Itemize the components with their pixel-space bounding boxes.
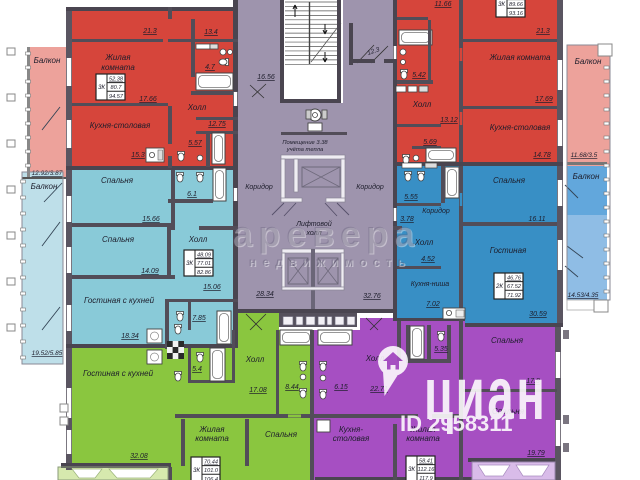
- svg-text:13.4: 13.4: [204, 29, 218, 36]
- svg-text:Холл: Холл: [187, 103, 207, 112]
- svg-text:3К: 3К: [498, 1, 505, 8]
- svg-text:19.52/5.85: 19.52/5.85: [32, 350, 63, 357]
- svg-text:5.69: 5.69: [423, 139, 437, 146]
- svg-text:4.52: 4.52: [421, 256, 435, 263]
- svg-text:11.66: 11.66: [435, 1, 452, 8]
- svg-text:19.79: 19.79: [527, 450, 545, 457]
- svg-text:30.59: 30.59: [529, 311, 547, 318]
- svg-text:Жилая комната: Жилая комната: [489, 53, 551, 62]
- svg-text:Балкон: Балкон: [34, 56, 61, 65]
- svg-text:Балкон: Балкон: [31, 182, 58, 191]
- svg-text:5.35: 5.35: [434, 346, 448, 353]
- svg-text:14.53/4.35: 14.53/4.35: [568, 292, 599, 299]
- svg-text:аревера: аревера: [232, 213, 420, 254]
- svg-text:Кухня-столовая: Кухня-столовая: [90, 121, 151, 130]
- svg-text:Спальня: Спальня: [102, 235, 135, 244]
- svg-text:17.08: 17.08: [249, 387, 267, 394]
- svg-text:71.92: 71.92: [507, 293, 522, 299]
- svg-text:32.08: 32.08: [130, 453, 148, 460]
- svg-text:Балкон: Балкон: [575, 57, 602, 66]
- svg-text:Балкон: Балкон: [573, 172, 600, 181]
- svg-text:Спальня: Спальня: [493, 176, 526, 185]
- svg-text:3К: 3К: [193, 467, 200, 474]
- svg-text:77.01: 77.01: [197, 261, 211, 267]
- svg-text:15.66: 15.66: [142, 216, 160, 223]
- svg-text:89.66: 89.66: [509, 2, 524, 8]
- svg-text:Жилая: Жилая: [104, 53, 131, 62]
- svg-text:17.66: 17.66: [139, 96, 157, 103]
- svg-text:18.34: 18.34: [121, 333, 139, 340]
- svg-text:58.41: 58.41: [419, 459, 433, 465]
- svg-text:ID 2958311: ID 2958311: [400, 411, 513, 436]
- svg-text:14.78: 14.78: [533, 152, 551, 159]
- svg-text:7.85: 7.85: [192, 315, 206, 322]
- svg-text:117.9: 117.9: [419, 476, 433, 480]
- svg-text:14.09: 14.09: [141, 268, 159, 275]
- svg-text:101.0: 101.0: [204, 468, 219, 474]
- svg-text:Спальня: Спальня: [491, 336, 524, 345]
- svg-text:5.57: 5.57: [188, 140, 203, 147]
- svg-text:48.09: 48.09: [197, 253, 211, 259]
- svg-text:82.86: 82.86: [197, 270, 212, 276]
- svg-text:94.57: 94.57: [109, 94, 124, 100]
- svg-text:5.55: 5.55: [404, 194, 418, 201]
- svg-text:28.34: 28.34: [255, 291, 274, 298]
- svg-text:15.3: 15.3: [131, 152, 145, 159]
- svg-text:Кухня-ниша: Кухня-ниша: [411, 281, 450, 288]
- svg-text:Гостиная с кухней: Гостиная с кухней: [83, 369, 154, 378]
- svg-text:5.42: 5.42: [412, 72, 426, 79]
- svg-text:112.16: 112.16: [418, 467, 436, 473]
- svg-text:21.3: 21.3: [142, 28, 157, 35]
- svg-text:Кухня-столовая: Кухня-столовая: [490, 123, 551, 132]
- svg-text:3К: 3К: [98, 84, 105, 91]
- svg-text:Холл: Холл: [188, 235, 208, 244]
- svg-text:12.75: 12.75: [208, 121, 226, 128]
- svg-text:Холл: Холл: [412, 100, 432, 109]
- svg-text:Гостиная: Гостиная: [490, 246, 527, 255]
- svg-text:8.44: 8.44: [285, 384, 299, 391]
- svg-text:Помещение 3.38: Помещение 3.38: [282, 140, 328, 146]
- svg-text:11.68/3.5: 11.68/3.5: [571, 152, 598, 159]
- svg-text:16.11: 16.11: [529, 216, 546, 223]
- svg-text:Спальня: Спальня: [265, 430, 298, 439]
- svg-text:5.4: 5.4: [192, 366, 202, 373]
- svg-text:Коридор: Коридор: [245, 183, 273, 191]
- svg-text:столовая: столовая: [333, 434, 370, 443]
- svg-text:Коридор: Коридор: [356, 183, 384, 191]
- svg-text:3К: 3К: [186, 260, 193, 267]
- svg-text:93.16: 93.16: [509, 11, 524, 17]
- svg-text:12.92/3.87: 12.92/3.87: [32, 170, 63, 177]
- svg-text:2К: 2К: [495, 283, 503, 290]
- svg-text:17.69: 17.69: [535, 96, 553, 103]
- svg-text:7.02: 7.02: [426, 301, 440, 308]
- svg-text:4.7: 4.7: [205, 64, 216, 71]
- svg-text:16.56: 16.56: [257, 74, 275, 81]
- svg-text:13.12: 13.12: [440, 117, 458, 124]
- svg-text:Холл: Холл: [245, 355, 265, 364]
- svg-text:комната: комната: [195, 434, 229, 443]
- svg-text:6.15: 6.15: [334, 384, 348, 391]
- svg-text:6.1: 6.1: [187, 191, 197, 198]
- svg-text:32.76: 32.76: [363, 293, 381, 300]
- svg-text:46.76: 46.76: [507, 276, 522, 282]
- svg-text:80.7: 80.7: [111, 85, 123, 91]
- svg-text:70.44: 70.44: [204, 460, 218, 466]
- svg-text:21.3: 21.3: [535, 28, 550, 35]
- svg-text:комната: комната: [101, 63, 135, 72]
- svg-text:недвижимость: недвижимость: [249, 255, 411, 269]
- svg-text:Спальня: Спальня: [101, 176, 134, 185]
- svg-text:Гостиная с кухней: Гостиная с кухней: [84, 296, 155, 305]
- svg-text:52.38: 52.38: [109, 77, 124, 83]
- svg-text:Жилая: Жилая: [198, 425, 225, 434]
- svg-text:Коридор: Коридор: [422, 207, 450, 215]
- svg-text:67.52: 67.52: [507, 284, 522, 290]
- svg-text:3К: 3К: [408, 466, 415, 473]
- svg-text:15.06: 15.06: [203, 284, 221, 291]
- svg-text:Кухня-: Кухня-: [339, 425, 363, 434]
- svg-text:учёта тепла: учёта тепла: [286, 147, 324, 153]
